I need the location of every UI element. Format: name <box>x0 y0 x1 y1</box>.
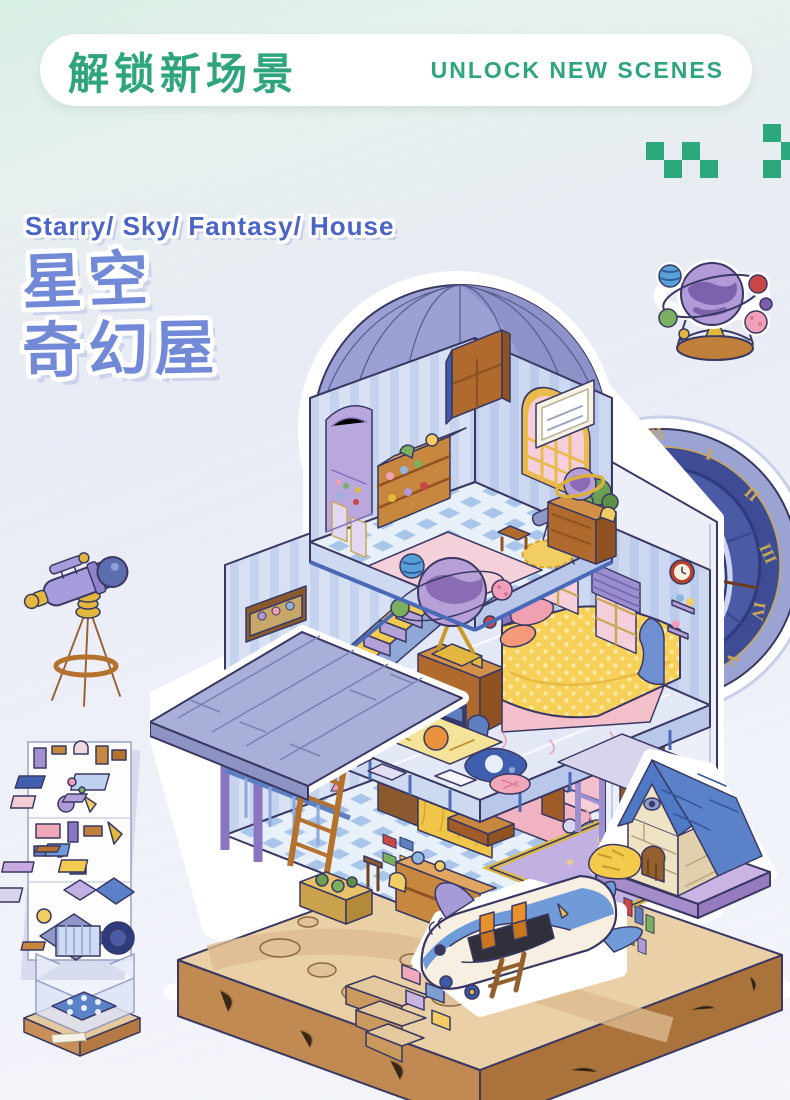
telescope-illustration <box>22 548 140 713</box>
hay-pile <box>589 845 641 879</box>
pixel-square <box>763 160 781 178</box>
telescope-icon <box>22 548 132 706</box>
pixel-square <box>664 160 682 178</box>
promo-poster: { "page": { "background_top": "#ddefe6",… <box>0 0 790 1100</box>
pixel-square <box>763 124 781 142</box>
header-banner: 解锁新场景 UNLOCK NEW SCENES <box>40 34 752 106</box>
sticker-sheet <box>0 741 134 960</box>
pixel-square <box>781 142 790 160</box>
pixel-square <box>682 142 700 160</box>
subtitle-english: Starry/ Sky/ Fantasy/ House <box>25 211 394 242</box>
pixel-square <box>700 160 718 178</box>
sticker-sheet-preview <box>0 730 160 1075</box>
fantasy-house-illustration: XI XII I II III IV V VI VII <box>150 270 790 1100</box>
header-title-en: UNLOCK NEW SCENES <box>431 57 724 84</box>
header-title-cn: 解锁新场景 <box>68 39 298 102</box>
pixel-square <box>646 142 664 160</box>
